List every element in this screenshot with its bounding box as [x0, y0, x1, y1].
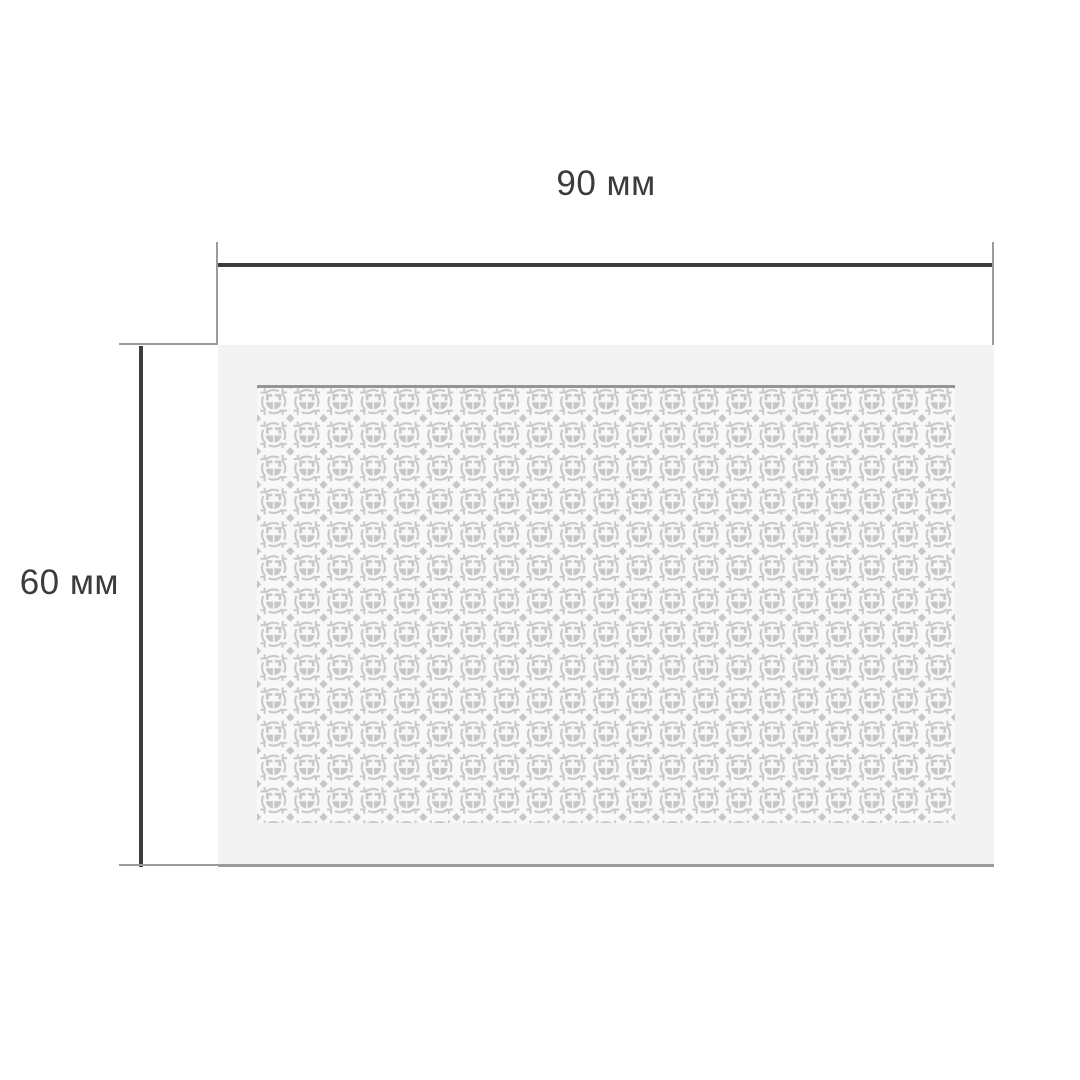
extension-line-left-top: [119, 343, 218, 345]
perforation-pattern: [257, 385, 955, 823]
width-dimension-line: [217, 263, 994, 267]
screen-panel: [218, 345, 994, 866]
extension-line-top-right: [992, 242, 994, 345]
extension-line-top-left: [216, 242, 218, 345]
perforation-pattern-icon: [257, 385, 955, 823]
height-dimension-line: [139, 346, 143, 867]
width-dimension-label: 90 мм: [218, 163, 994, 205]
height-dimension-label: 60 мм: [0, 562, 119, 604]
extension-line-left-bottom: [119, 864, 218, 866]
panel-bottom-edge: [218, 864, 994, 867]
product-dimension-diagram: 90 мм 60 мм: [0, 0, 1080, 1080]
pattern-inset-shadow: [257, 385, 955, 388]
